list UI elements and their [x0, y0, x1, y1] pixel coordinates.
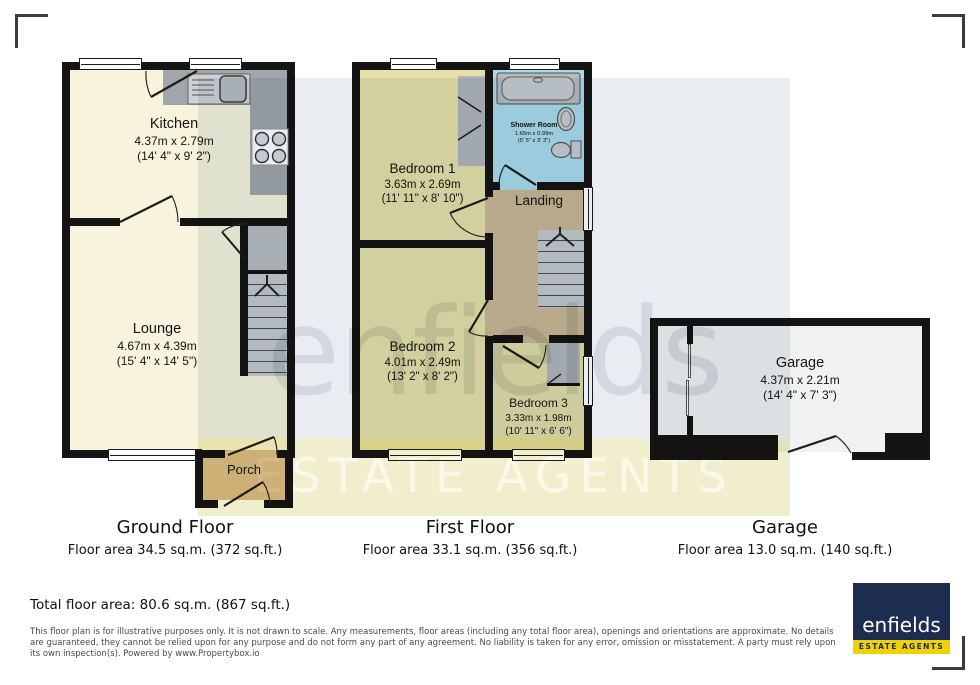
floorplan-page: Kitchen 4.37m x 2.79m (14' 4" x 9' 2") L…	[0, 0, 980, 685]
doors-and-fixtures-overlay	[0, 0, 980, 685]
